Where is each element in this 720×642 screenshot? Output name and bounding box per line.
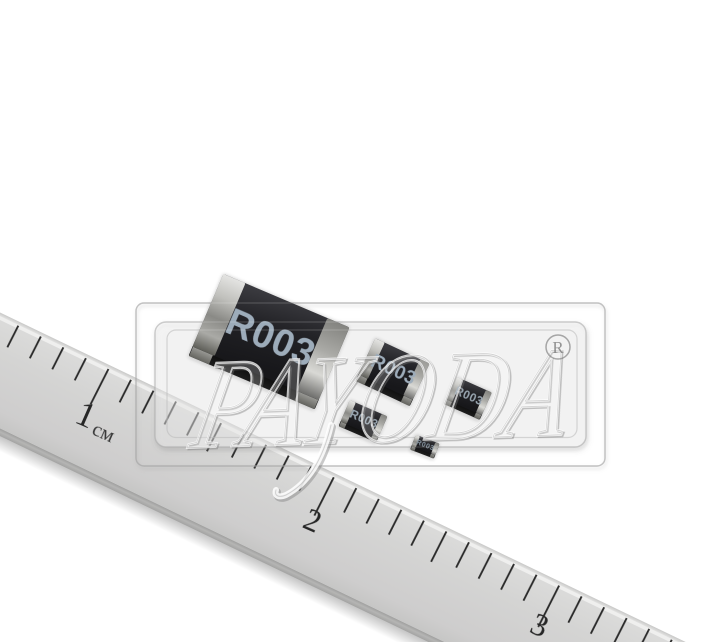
- svg-text:PAYODA: PAYODA: [181, 321, 586, 477]
- svg-text:R: R: [552, 338, 564, 357]
